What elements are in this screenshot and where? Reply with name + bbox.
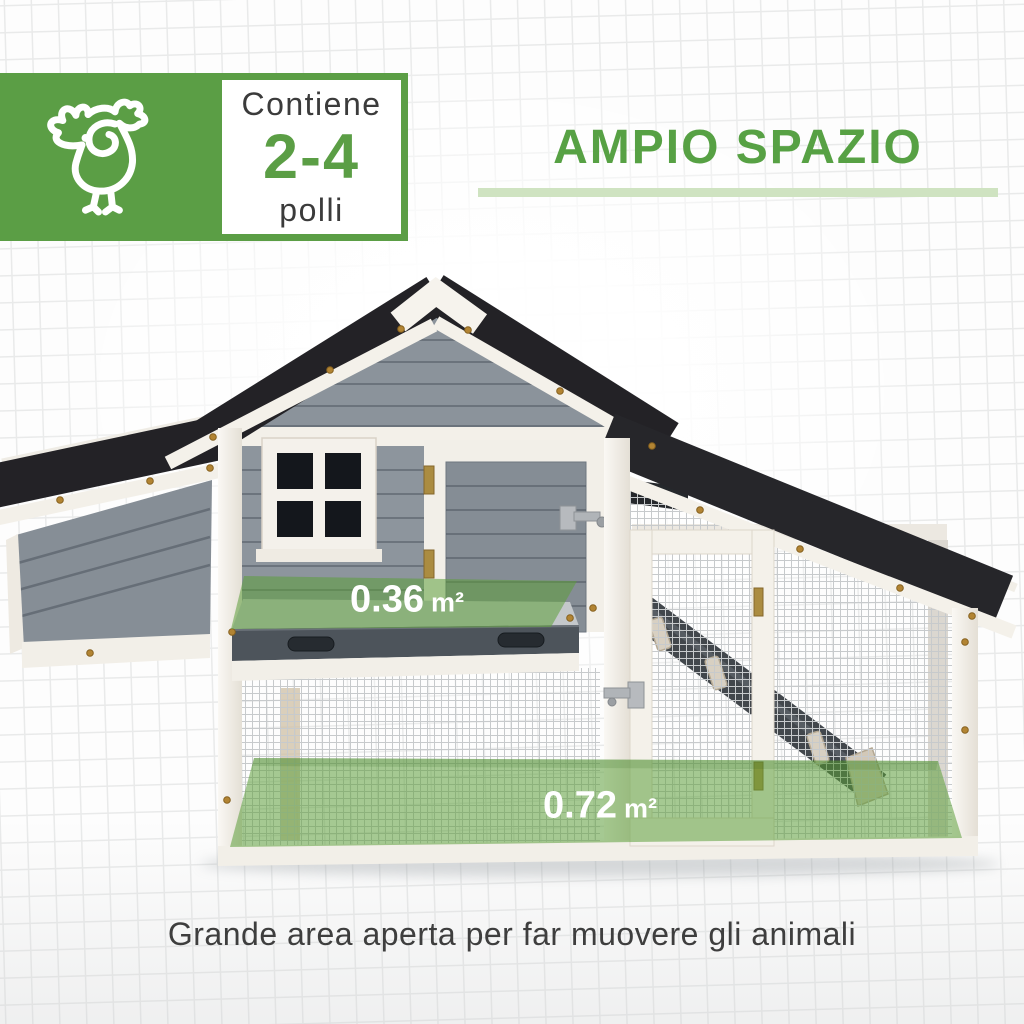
run-area-unit: m² <box>624 794 657 825</box>
house-area-unit: m² <box>431 588 464 619</box>
run-door-hinge <box>754 588 763 616</box>
product-infographic: Contiene 2-4 polli AMPIO SPAZIO 0.36m² 0… <box>0 0 1024 1024</box>
caption-text: Grande area aperta per far muovere gli a… <box>0 916 1024 953</box>
capacity-badge: Contiene 2-4 polli <box>0 73 408 241</box>
capacity-label-bottom: polli <box>279 190 343 230</box>
chicken-icon <box>0 73 222 241</box>
run-area-value: 0.72 <box>543 785 617 828</box>
tray-handle <box>288 637 334 651</box>
tray-handle <box>498 633 544 647</box>
house-window <box>256 438 382 562</box>
house-area-label: 0.36m² <box>350 579 464 622</box>
capacity-label-top: Contiene <box>241 84 381 124</box>
capacity-panel: Contiene 2-4 polli <box>222 80 401 234</box>
house-area-value: 0.36 <box>350 579 424 622</box>
section-title-block: AMPIO SPAZIO <box>478 120 998 197</box>
door-hinge <box>424 466 434 494</box>
page-title: AMPIO SPAZIO <box>478 120 998 175</box>
title-underline <box>478 188 998 197</box>
capacity-value: 2-4 <box>263 124 360 190</box>
run-area-label: 0.72m² <box>543 785 657 828</box>
door-hinge <box>424 550 434 578</box>
